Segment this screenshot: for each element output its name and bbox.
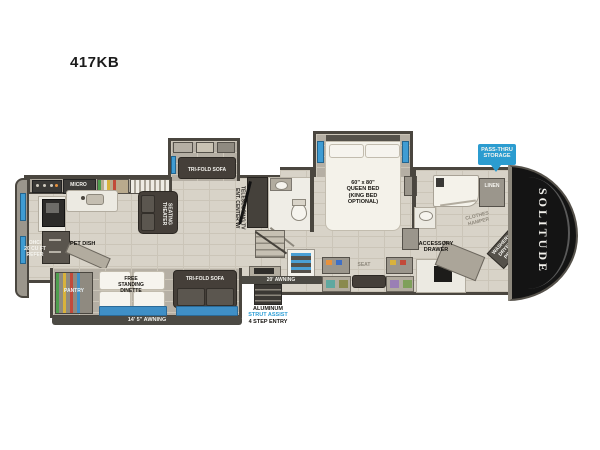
overhead-cabinet2-icon <box>217 142 235 153</box>
dresser-right-items-icon <box>390 260 396 265</box>
sofa-cushion2-icon <box>206 288 234 306</box>
entry-steps <box>254 284 282 305</box>
cabinet-left-squares-icon <box>326 280 335 288</box>
entry-label: ALUMINUM STRUT ASSIST 4 STEP ENTRY <box>238 306 298 325</box>
main-awning-label: 14' 5" AWNING <box>128 317 167 323</box>
pass-thru-badge: PASS-THRU STORAGE <box>478 144 516 165</box>
model-number: 417KB <box>70 54 119 71</box>
linen-label: LINEN <box>479 184 505 190</box>
refer-label: OHC/ 20 CU FT REFER <box>22 241 48 258</box>
main-awning-bar: 14' 5" AWNING <box>52 316 242 325</box>
bedroom-bench <box>352 275 386 288</box>
shower-head-icon <box>436 178 444 187</box>
bedroom-wall <box>310 170 314 232</box>
pillow-right-icon <box>365 144 400 158</box>
queen-bed-label: 60" x 80" QUEEN BED (KING BED OPTIONAL) <box>330 180 396 205</box>
faucet-icon <box>81 196 85 200</box>
entry-line3: 4 STEP ENTRY <box>238 319 298 325</box>
accessory-line2: DRAWER <box>416 247 456 253</box>
rear-window-icon <box>20 193 26 221</box>
pantry-label: PANTRY <box>55 289 93 295</box>
sofa-cushion-icon <box>177 288 205 306</box>
refer-line3: REFER <box>22 253 48 259</box>
brand-logo: SOLITUDE <box>530 188 550 268</box>
ent-center-label: ENT. CENTER W/ TELESCOPING TV <box>233 186 245 230</box>
tri-fold-sofa-bottom-label: TRI-FOLD SOFA <box>173 277 237 283</box>
seat-label: SEAT <box>352 263 376 269</box>
theater-cushion2-icon <box>141 213 155 231</box>
ent-center-line1: ENT. CENTER W/ <box>233 186 239 230</box>
refrigerator-screen-icon <box>46 203 59 213</box>
slide-window3-icon <box>99 306 167 316</box>
burner-dots-icon <box>36 184 39 187</box>
pass-thru-text: PASS-THRU STORAGE <box>478 144 516 160</box>
overhead-cabinet-icon <box>173 142 193 153</box>
dresser-left-items-icon <box>326 260 332 265</box>
pillow-left-icon <box>329 144 364 158</box>
door-awning-bar: 20' AWNING <box>238 276 324 284</box>
sink-icon <box>86 194 104 205</box>
theater-seating-label: THEATER SEATING <box>160 196 172 232</box>
pet-dish-label: PET DISH <box>70 241 104 247</box>
pass-thru-arrow-icon <box>491 165 501 172</box>
floorplan-canvas: 417KB TRI-FOLD SOFA MICRO OHC/ 20 CU FT … <box>0 0 600 450</box>
dinette-line3: DINETTE <box>106 289 156 295</box>
entry-mat-icon <box>254 268 274 274</box>
bedroom-window-right-icon <box>402 141 409 163</box>
door-awning-label: 20' AWNING <box>267 277 296 283</box>
theater-cushion-icon <box>141 195 155 213</box>
pass-thru-line2: STORAGE <box>478 153 516 159</box>
ent-center-line2: TELESCOPING TV <box>239 186 245 230</box>
microwave-label: MICRO <box>63 183 94 189</box>
cabinet-right-squares-icon <box>390 280 399 288</box>
storage-basket-icon <box>196 142 214 153</box>
toilet-tank-icon <box>292 199 306 206</box>
entry-storage-cubby <box>288 250 314 276</box>
bed-line4: OPTIONAL) <box>330 199 396 205</box>
bath-sink2-icon <box>419 211 433 221</box>
tri-fold-sofa-top-label: TRI-FOLD SOFA <box>176 168 238 174</box>
bath-sink-icon <box>275 181 288 190</box>
dinette-label: FREE STANDING DINETTE <box>106 277 156 294</box>
bedroom-window-left-icon <box>317 141 324 163</box>
accessory-drawer-label: ACCESSORY DRAWER <box>416 241 456 254</box>
slide-window4-icon <box>176 306 238 316</box>
cabinet-handles-icon <box>49 239 61 241</box>
